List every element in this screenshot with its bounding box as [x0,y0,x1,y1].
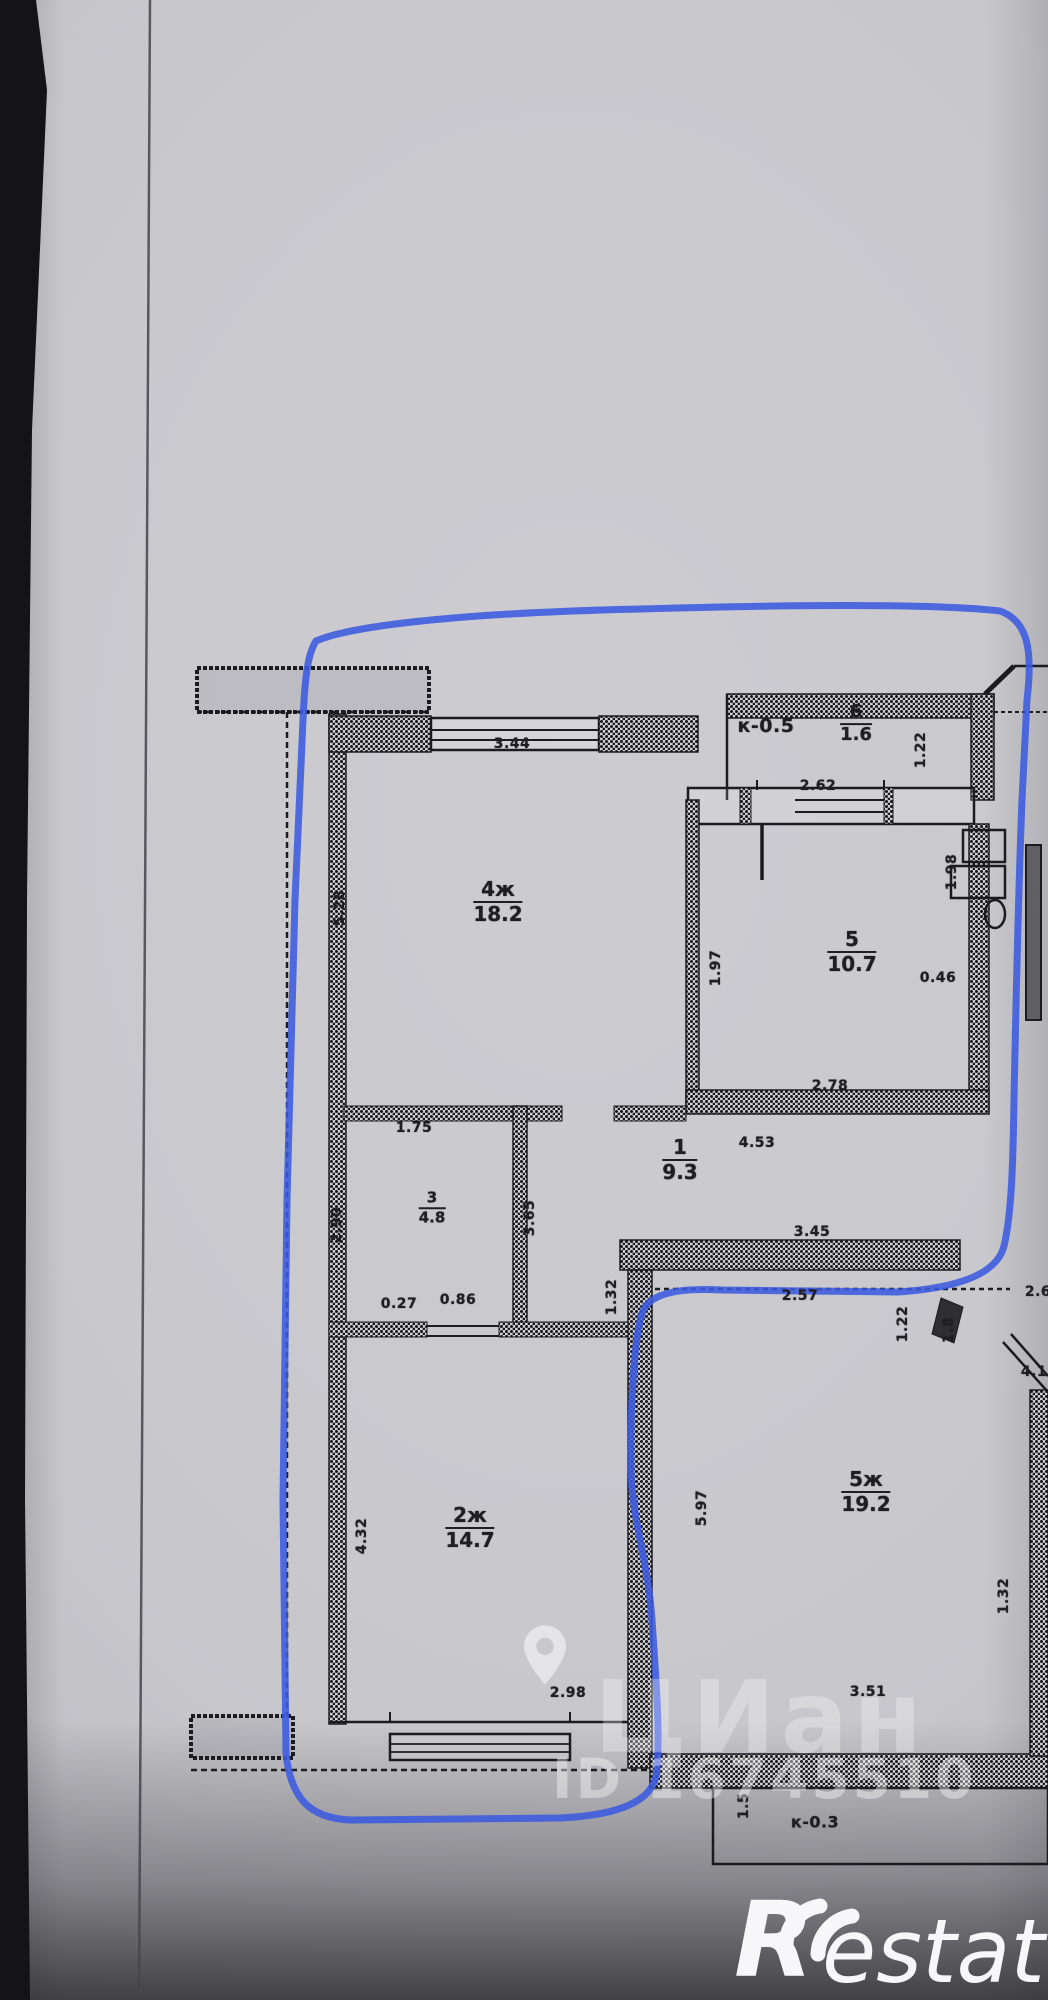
dimension-label: 4.32 [354,1518,370,1555]
room-label: 34.8 [419,1190,446,1226]
room-label: 5ж19.2 [841,1469,890,1515]
dimension-label: 2.78 [812,1078,849,1094]
dimension-label: 0.86 [440,1292,477,1308]
dimension-label: 3.65 [522,1200,538,1237]
restate-logo: R estate [724,1892,1048,2000]
coefficient-label: к-0.5 [738,715,795,737]
room-label: 4ж18.2 [473,879,522,925]
dimension-label: 2.62 [800,778,837,794]
room-label: 19.3 [662,1137,697,1183]
dimension-label: 1.75 [396,1120,433,1136]
floor-plan-photo: 3.442.621.225.281.971.980.462.784.533.45… [0,0,1048,2000]
dimension-label: 0.27 [381,1296,418,1312]
room-label: 510.7 [827,929,876,975]
listing-id-watermark: ID 16745510 [552,1752,976,1807]
dimension-label: 3.45 [794,1224,831,1240]
dimension-label: 5.97 [694,1490,710,1527]
dimension-label: 1.32 [604,1279,620,1316]
dimension-label: 5.28 [332,890,348,927]
dimension-label: 2.6 [1025,1284,1048,1300]
dimension-label: 2.98 [550,1685,587,1701]
room-label: 2ж14.7 [445,1505,494,1551]
location-pin-icon [524,1624,566,1686]
restate-logo-r: R [734,1888,810,1992]
dimension-label: 1.98 [944,854,960,891]
dimension-label: 1.32 [996,1578,1012,1615]
dimension-label: 0.46 [920,970,957,986]
room-label: 61.6 [840,703,872,745]
dimension-label: 1.8 [941,1317,957,1343]
dimension-label: 1.22 [895,1306,911,1343]
dimension-label: 1.97 [708,950,724,987]
dimension-label: 2.90 [329,1207,345,1244]
dimension-label: 4.53 [739,1135,776,1151]
restate-logo-text: estate [822,1908,1048,1996]
dimension-label: 4.1 [1021,1364,1047,1380]
dimension-label: 3.44 [494,736,531,752]
coefficient-label: к-0.3 [791,1813,839,1832]
dimension-label: 2.57 [782,1288,819,1304]
dimension-label: 1.22 [913,732,929,769]
